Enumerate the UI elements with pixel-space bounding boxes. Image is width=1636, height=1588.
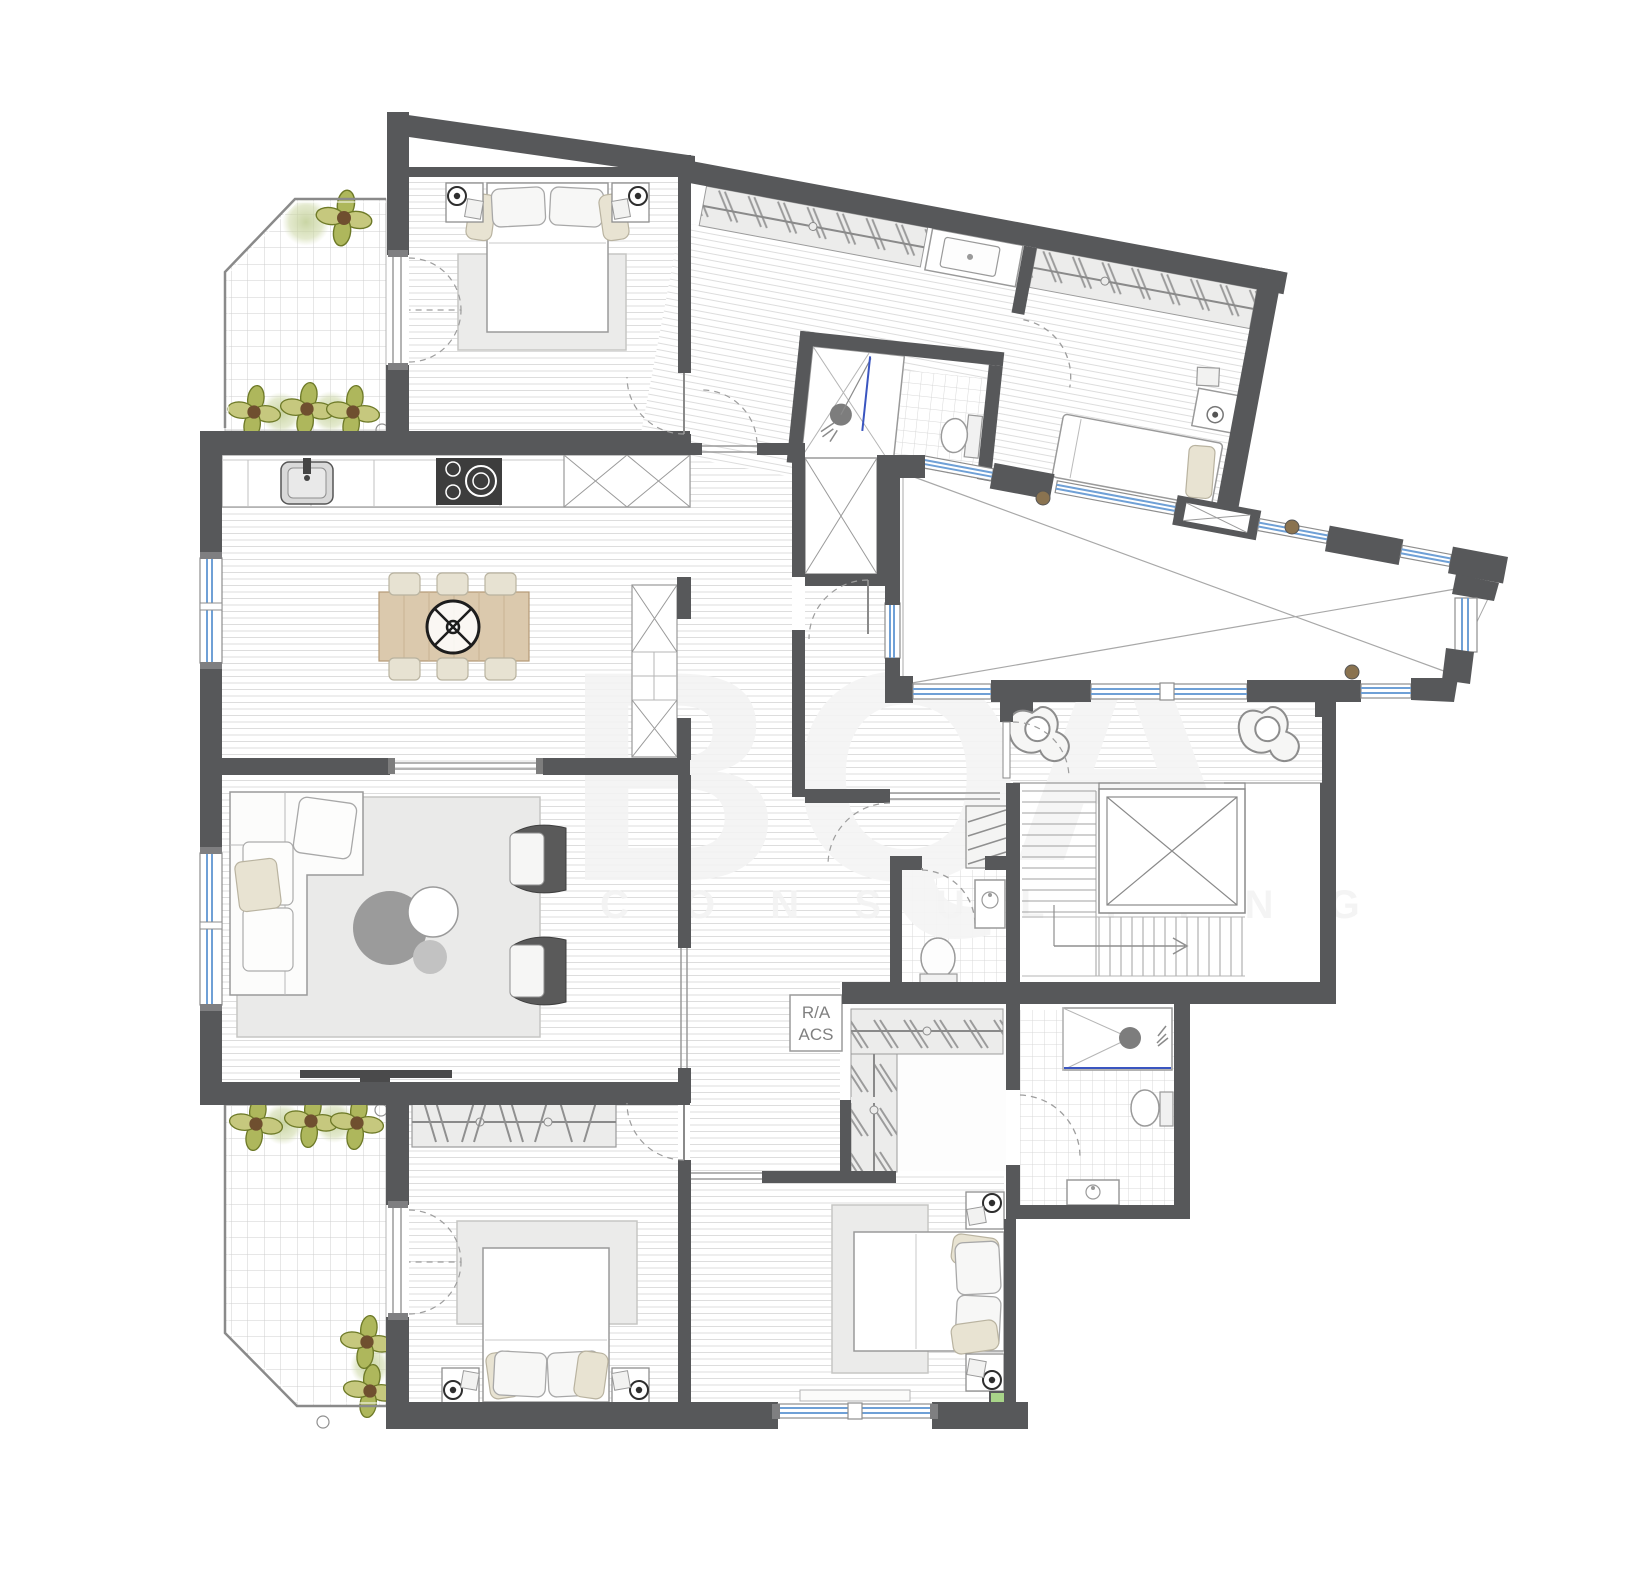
svg-text:R/A: R/A bbox=[802, 1003, 831, 1022]
svg-text:ACS: ACS bbox=[799, 1025, 834, 1044]
